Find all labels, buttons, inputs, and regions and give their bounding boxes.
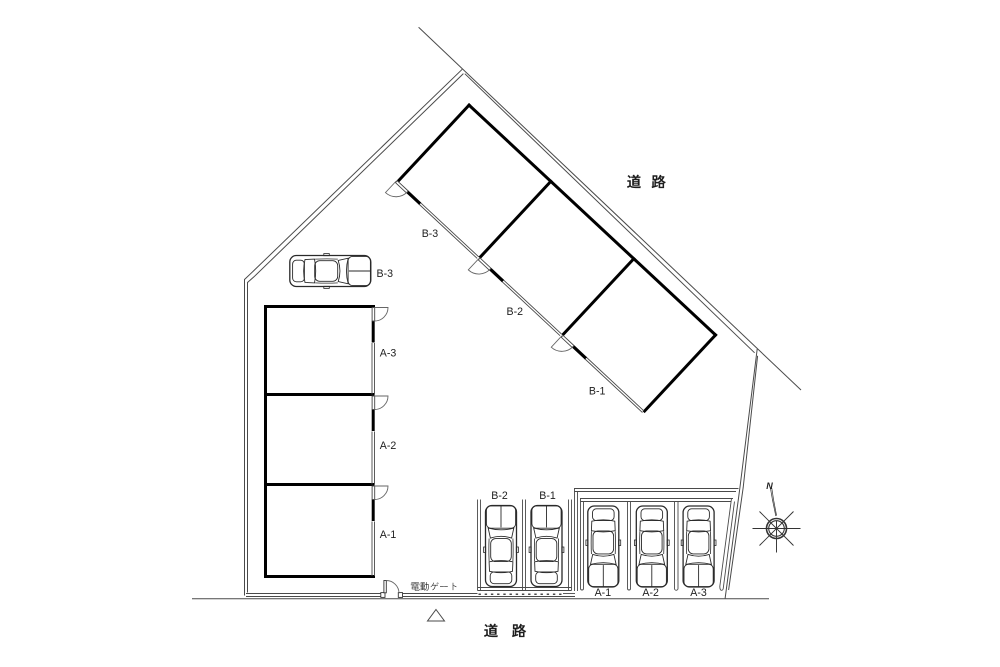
svg-text:A-2: A-2 xyxy=(642,587,659,599)
svg-text:B-3: B-3 xyxy=(377,268,394,280)
svg-text:A-2: A-2 xyxy=(380,440,397,452)
svg-text:A-1: A-1 xyxy=(380,529,397,541)
svg-text:A-1: A-1 xyxy=(595,587,612,599)
svg-text:B-3: B-3 xyxy=(422,228,439,240)
svg-text:B-1: B-1 xyxy=(589,385,606,397)
svg-text:B-2: B-2 xyxy=(507,306,524,318)
svg-text:B-2: B-2 xyxy=(491,490,508,502)
svg-text:A-3: A-3 xyxy=(380,348,397,360)
svg-text:B-1: B-1 xyxy=(539,490,556,502)
svg-text:A-3: A-3 xyxy=(690,587,707,599)
svg-text:N: N xyxy=(766,481,773,491)
